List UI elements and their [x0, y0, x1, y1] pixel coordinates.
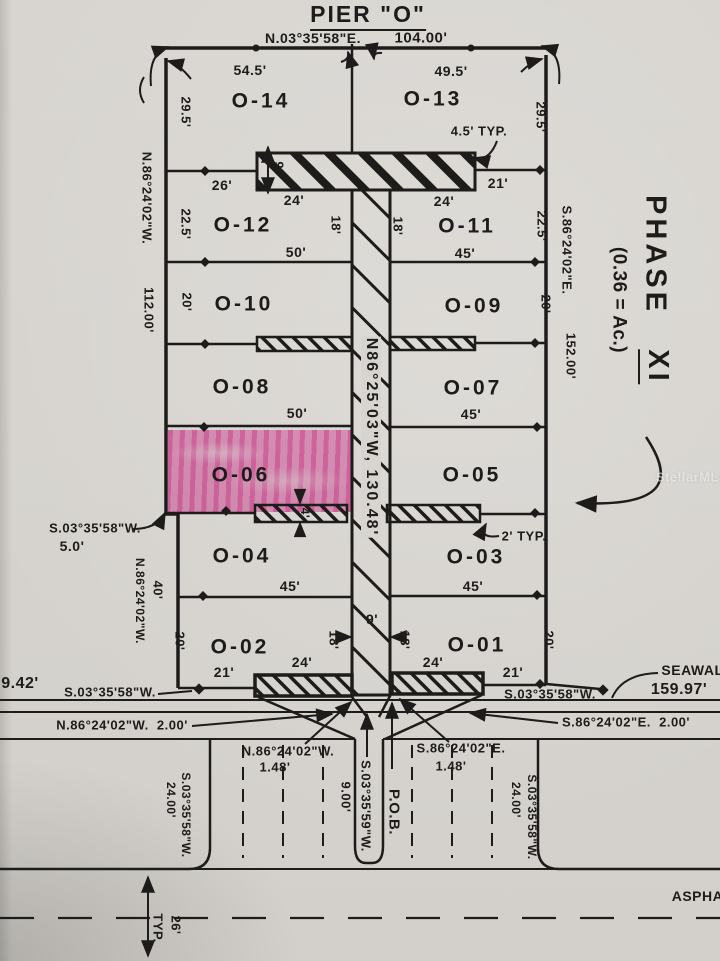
depth-20-left-1: 20' — [181, 292, 194, 311]
side-distance-right: 152.00' — [565, 333, 578, 379]
tick-arrow-left — [341, 52, 348, 62]
bearing-2ft-left: N.86°24'02"W. 2.00' — [56, 719, 188, 732]
top-bearing: N.03°35'58"E. — [265, 31, 361, 45]
finger-pier-2r — [387, 505, 480, 522]
dim-18-br: 18' — [399, 630, 412, 649]
dim-45-1: 45' — [455, 246, 475, 260]
dim-24-tr: 24' — [434, 194, 454, 208]
leader-45typ — [474, 141, 497, 159]
dist-148-right: 1.48' — [436, 760, 467, 773]
side-distance-left: 112.00' — [143, 287, 156, 333]
plat-scan-page: PIER "O"N.03°35'58"E.104.00'54.5'49.5'O-… — [0, 0, 720, 961]
lot-o06: O-06 — [212, 465, 271, 486]
corner-arrow-tl2 — [168, 61, 191, 79]
bearing-148-left: N.86°24'02"W. — [242, 745, 335, 758]
jog-bearing-label: S.03°35'58"W. — [49, 522, 141, 535]
dim-18-tl: 18' — [330, 215, 343, 234]
dim-4: 4' — [299, 508, 311, 519]
lot-line-dist-left: 24.00' — [165, 782, 177, 818]
dim-45-2: 45' — [461, 407, 481, 421]
pob-bearing: S.03°35'59"W. — [360, 760, 373, 852]
finger-pier-1l — [257, 337, 352, 351]
leader-148-right — [400, 699, 449, 742]
side-bearing-left: N.86°24'02"W. — [141, 152, 154, 245]
dim-50-2: 50' — [287, 406, 307, 420]
jog-distance: 5.0' — [60, 539, 85, 553]
dim-24-tl: 24' — [284, 193, 304, 207]
lot-o03: O-03 — [447, 547, 506, 568]
dim-18-bl: 18' — [328, 630, 341, 649]
corner-bracket — [140, 77, 144, 103]
dim-21-br: 21' — [503, 665, 523, 679]
dist-942: 9.42' — [1, 676, 38, 692]
bearing-148-right: S.86°24'02"E. — [417, 742, 506, 755]
lot-o08: O-08 — [213, 377, 272, 398]
dim-21-bl: 21' — [214, 665, 234, 679]
dim-24-bl: 24' — [292, 655, 312, 669]
jog-side-bearing: N.86°24'02"W. — [134, 558, 146, 644]
dim-26-typ: 26' — [170, 915, 183, 934]
dist-148-left: 1.48' — [260, 761, 291, 774]
asphalt-label: ASPHALT — [672, 889, 720, 903]
walkway-bottom-l — [255, 675, 352, 696]
dim-24-br: 24' — [423, 655, 443, 669]
dim-9-strip: 9' — [273, 161, 286, 172]
side-bearing-right: S.86°24'02"E. — [561, 206, 574, 295]
dim-9-width: 9' — [366, 612, 378, 626]
typ-2: 2' TYP. — [502, 530, 547, 543]
dim-45-4: 45' — [463, 579, 483, 593]
lot-line-bearing-right: S.03°35'58"W. — [526, 774, 538, 859]
lot-o07: O-07 — [444, 378, 503, 399]
phase-word: PHASE — [641, 195, 670, 315]
dim-21-top: 21' — [488, 176, 508, 190]
width-o13: 49.5' — [434, 64, 467, 78]
watermark: StellarMLS — [656, 471, 720, 484]
depth-20-right-2: 20' — [543, 630, 556, 649]
lot-o05: O-05 — [443, 465, 502, 486]
dim-26: 26' — [212, 178, 232, 192]
lot-o14: O-14 — [232, 91, 291, 112]
sw-bearing-left: S.03°35'58"W. — [64, 686, 156, 699]
lot-o02: O-02 — [211, 637, 270, 658]
leader-sw-left — [158, 691, 192, 694]
top-distance: 104.00' — [395, 31, 448, 46]
depth-295-left: 29.5' — [180, 97, 193, 128]
leader-2ft-right — [470, 713, 558, 723]
finger-pier-1r — [390, 337, 475, 350]
seawall-distance: 159.97' — [651, 682, 707, 698]
tick-arrow-right — [374, 53, 382, 59]
sw-bearing-right: S.03°35'58"W. — [504, 688, 596, 701]
depth-225-left: 22.5' — [180, 209, 193, 240]
typ-45: 4.5' TYP. — [451, 125, 508, 138]
lot-o09: O-09 — [445, 296, 504, 317]
pob-label: P.O.B. — [387, 789, 402, 835]
width-o14: 54.5' — [233, 63, 266, 77]
pier-title: PIER "O" — [310, 3, 426, 31]
dim-18-tr: 18' — [392, 216, 405, 235]
dim-26-typ-word: TYP. — [152, 913, 165, 942]
dim-45-3: 45' — [280, 579, 300, 593]
bearing-2ft-right: S.86°24'02"E. 2.00' — [562, 716, 690, 729]
depth-295-right: 29.5' — [535, 102, 548, 133]
phase-numeral: XI — [638, 349, 672, 384]
corner-arrow-tr2 — [521, 59, 542, 72]
leader-phase — [577, 437, 661, 503]
walkway-top — [257, 153, 475, 190]
pob-distance: 9.00' — [340, 782, 353, 813]
phase-area: (0.36 = Ac.) — [610, 247, 629, 353]
depth-20-right-1: 20' — [540, 294, 553, 313]
walkway-bearing: N86°25'03"W, 130.48' — [361, 337, 381, 538]
lot-line-dist-right: 24.00' — [510, 782, 522, 818]
seawall-label: SEAWALL — [661, 663, 720, 677]
depth-225-right: 22.5' — [536, 211, 549, 242]
lot-o10: O-10 — [215, 294, 274, 315]
lot-o13: O-13 — [404, 89, 463, 110]
leader-2typ — [484, 524, 499, 537]
lot-o12: O-12 — [214, 215, 273, 236]
lot-o04: O-04 — [213, 546, 272, 567]
lot-o11: O-11 — [438, 216, 496, 237]
leader-148-left — [305, 702, 351, 744]
lot-o01: O-01 — [448, 635, 507, 656]
dim-50-1: 50' — [286, 245, 306, 259]
depth-20-left-2: 20' — [174, 631, 187, 650]
lot-line-bearing-left: S.03°35'58"W. — [180, 772, 192, 857]
walkway-bottom-r — [392, 673, 483, 694]
dim-40: 40' — [152, 580, 165, 599]
